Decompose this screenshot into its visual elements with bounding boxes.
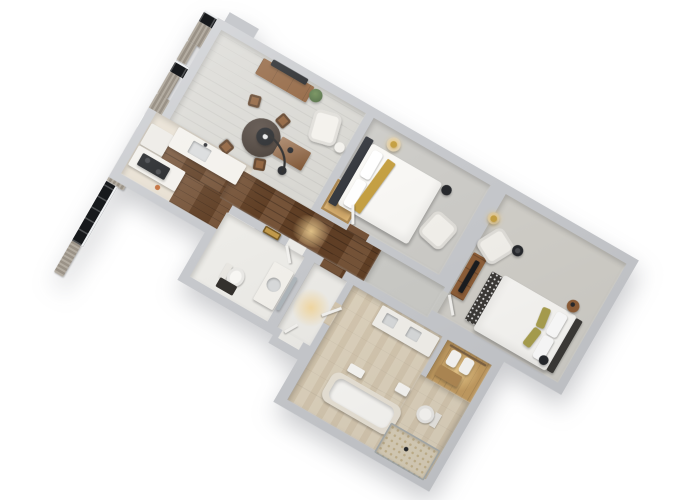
bedroom1-door xyxy=(351,205,354,225)
apartment-plan xyxy=(51,10,659,500)
floorplan-scene xyxy=(0,0,700,500)
bedroom2-curtain-south xyxy=(54,241,81,277)
bedroom2-east-window xyxy=(72,181,118,247)
